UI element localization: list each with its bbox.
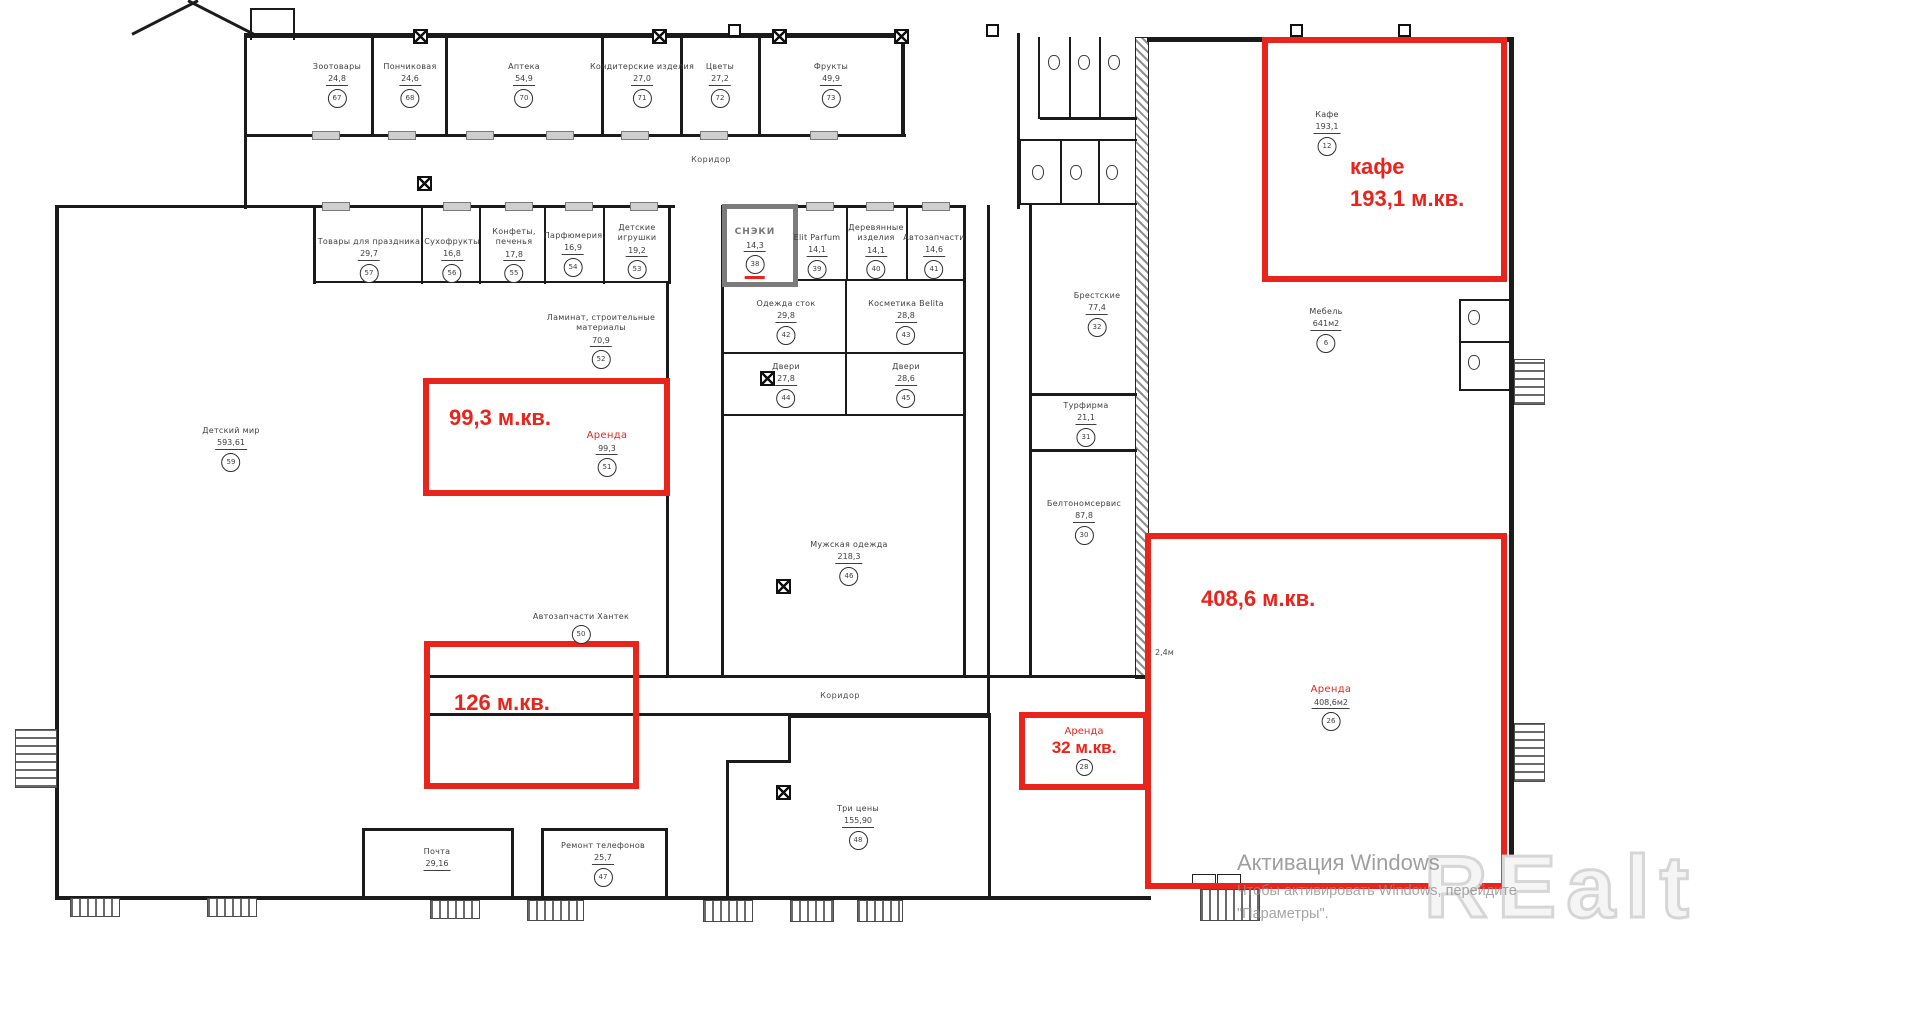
wall-segment	[1040, 117, 1137, 120]
room-label: Двери27,844	[772, 362, 800, 408]
column-marker	[776, 579, 791, 594]
windows-activation-line: Чтобы активировать Windows, перейдите	[1237, 883, 1517, 899]
wall-segment	[1029, 205, 1032, 677]
room-label: Ремонт телефонов25,747	[561, 841, 645, 887]
room-area: 641м2	[1311, 319, 1341, 330]
room-number-badge: 43	[896, 326, 915, 345]
entrance-gable-line	[187, 0, 254, 36]
room-number-badge: 57	[360, 264, 379, 283]
room-label: Парфюмерия16,954	[544, 231, 603, 277]
room-number-badge: 28	[1076, 759, 1093, 776]
stair-symbol	[430, 900, 480, 919]
room-label: Турфирма21,131	[1063, 401, 1108, 447]
door-marker	[505, 202, 533, 211]
room-label: Ламинат, строительныематериалы70,952	[547, 313, 655, 369]
wall-segment	[1029, 393, 1137, 396]
wall-segment	[1038, 37, 1040, 119]
column-marker	[772, 29, 787, 44]
room-number-badge: 51	[597, 458, 616, 477]
zone-area-label: 126 м.кв.	[454, 687, 550, 719]
room-area: 29,8	[775, 311, 797, 322]
wall-segment	[1069, 37, 1071, 119]
room-label: Аптека54,970	[508, 62, 540, 108]
room-label: СНЭКИ14,338	[735, 227, 776, 279]
corridor-label: Коридор	[820, 691, 860, 700]
room-name: Аренда	[587, 429, 628, 442]
toilet-icon	[1106, 165, 1118, 180]
room-name: Конфеты,	[492, 227, 536, 237]
wall-segment	[988, 715, 991, 899]
wall-segment	[758, 36, 761, 136]
room-name: Фрукты	[814, 62, 848, 72]
zone-arenda-label: Аренда	[1065, 726, 1104, 737]
room-number-badge: 67	[328, 89, 347, 108]
room-name: Косметика Belita	[868, 299, 944, 309]
room-label: Цветы27,272	[706, 62, 734, 108]
wall-segment	[1459, 389, 1511, 391]
wall-segment	[293, 8, 295, 40]
wall-segment	[1029, 449, 1137, 452]
room-name: Детский мир	[202, 426, 260, 436]
wall-segment	[250, 8, 295, 10]
room-area: 19,2	[626, 246, 648, 257]
stair-symbol	[15, 729, 57, 788]
door-marker	[466, 131, 494, 140]
room-number-badge: 38	[745, 255, 764, 274]
wall-segment	[1019, 139, 1137, 141]
wall-segment	[1459, 341, 1511, 343]
room-area: 27,2	[709, 74, 731, 85]
stair-symbol	[1514, 359, 1545, 405]
room-label: Аренда408,6м226	[1311, 683, 1352, 731]
room-area: 54,9	[513, 74, 535, 85]
toilet-icon	[1108, 55, 1120, 70]
room-number-badge: 31	[1077, 428, 1096, 447]
room-number-badge: 32	[1087, 318, 1106, 337]
room-label: Детскиеигрушки19,253	[618, 223, 657, 279]
wall-segment	[1459, 299, 1461, 391]
toilet-icon	[1070, 165, 1082, 180]
wall-segment	[1098, 139, 1100, 203]
wall-segment	[1060, 139, 1062, 203]
room-number-badge: 52	[591, 350, 610, 369]
room-name: Двери	[772, 362, 800, 372]
entrance-gable-line	[131, 0, 198, 36]
door-marker	[630, 202, 658, 211]
room-name: изделия	[848, 233, 903, 243]
room-label: Мебель641м26	[1309, 307, 1342, 353]
room-area: 77,4	[1086, 303, 1108, 314]
zone-area-label: 32 м.кв.	[1052, 738, 1117, 758]
room-number-badge: 72	[710, 89, 729, 108]
stair-symbol	[703, 900, 753, 922]
zone-area-label: 99,3 м.кв.	[449, 402, 551, 434]
room-name: Кафе	[1314, 110, 1341, 120]
wall-segment	[313, 205, 316, 284]
room-number-badge: 26	[1321, 712, 1340, 731]
wall-segment	[845, 281, 847, 414]
room-label: Одежда сток29,842	[756, 299, 815, 345]
room-number-badge: 50	[571, 625, 590, 644]
room-label: Фрукты49,973	[814, 62, 848, 108]
wall-segment	[1459, 299, 1511, 301]
room-number-badge: 48	[849, 831, 868, 850]
room-label: Деревянныеизделия14,140	[848, 223, 903, 279]
room-label: Автозапчасти14,641	[903, 233, 965, 279]
room-area: 24,8	[326, 74, 348, 85]
wall-segment	[901, 33, 905, 137]
room-label: Белтономсервис87,830	[1047, 499, 1121, 545]
room-number-badge: 53	[627, 260, 646, 279]
room-number-badge: 44	[776, 389, 795, 408]
red-underline	[745, 276, 765, 279]
room-name: Ламинат, строительные	[547, 313, 655, 323]
wall-segment	[371, 36, 374, 136]
wall-segment	[421, 208, 423, 284]
room-name: Автозапчасти	[903, 233, 965, 243]
toilet-icon	[1468, 310, 1480, 325]
room-number-badge: 45	[896, 389, 915, 408]
room-number-badge: 47	[593, 868, 612, 887]
door-marker	[922, 202, 950, 211]
room-label: Двери28,645	[892, 362, 920, 408]
room-number-badge: 73	[822, 89, 841, 108]
room-name: Одежда сток	[756, 299, 815, 309]
room-name: Аренда	[1311, 683, 1352, 696]
wall-segment	[1019, 203, 1137, 205]
room-label: Сухофрукты16,856	[424, 237, 479, 283]
room-name: Зоотовары	[313, 62, 361, 72]
wall-segment	[1029, 675, 1147, 678]
room-area: 87,8	[1073, 511, 1095, 522]
wall-segment	[55, 205, 59, 900]
room-label: Брестские77,432	[1074, 291, 1121, 337]
room-name: печенья	[492, 237, 536, 247]
room-number-badge: 39	[807, 260, 826, 279]
room-label: Мужская одежда218,346	[810, 540, 888, 586]
room-label: Кафе193,112	[1314, 110, 1341, 156]
column-marker	[652, 29, 667, 44]
wall-segment	[362, 828, 365, 898]
wall-segment	[1019, 139, 1021, 203]
room-area: 17,8	[503, 250, 525, 261]
room-area: 408,6м2	[1312, 698, 1350, 709]
wall-segment	[1099, 37, 1101, 119]
room-number-badge: 30	[1075, 526, 1094, 545]
door-marker	[322, 202, 350, 211]
door-marker	[700, 131, 728, 140]
vent-marker	[986, 24, 999, 37]
stair-symbol	[527, 900, 584, 921]
room-name: Цветы	[706, 62, 734, 72]
toilet-icon	[1078, 55, 1090, 70]
room-number-badge: 54	[564, 258, 583, 277]
room-name: Деревянные	[848, 223, 903, 233]
room-area: 28,6	[895, 374, 917, 385]
corridor-label: Коридор	[691, 155, 731, 164]
room-label: Детский мир593,6159	[202, 426, 260, 472]
room-name: Товары для праздника	[318, 237, 421, 247]
room-name: материалы	[547, 323, 655, 333]
stair-symbol	[857, 900, 903, 922]
room-number-badge: 56	[442, 264, 461, 283]
room-label: Почта29,16	[424, 847, 451, 871]
room-area: 28,8	[895, 311, 917, 322]
dimension-label: 2,4м	[1155, 648, 1174, 657]
wall-segment	[244, 33, 247, 209]
zone-area-label: 408,6 м.кв.	[1201, 583, 1315, 615]
room-number-badge: 6	[1317, 334, 1336, 353]
room-name: Детские	[618, 223, 657, 233]
wall-segment	[541, 828, 544, 898]
room-area: 14,1	[865, 246, 887, 257]
toilet-icon	[1032, 165, 1044, 180]
room-name: СНЭКИ	[735, 227, 776, 239]
room-area: 21,1	[1075, 413, 1097, 424]
wall-segment	[603, 208, 605, 284]
door-marker	[546, 131, 574, 140]
zone-99: 99,3 м.кв.	[423, 378, 670, 496]
room-name: Пончиковая	[383, 62, 436, 72]
room-label: Зоотовары24,867	[313, 62, 361, 108]
room-name: Почта	[424, 847, 451, 857]
wall-segment	[788, 715, 990, 718]
room-area: 193,1	[1314, 122, 1341, 133]
stair-symbol	[790, 900, 834, 922]
wall-segment	[445, 36, 448, 136]
wall-segment	[987, 205, 990, 715]
vent-marker	[728, 24, 741, 37]
column-marker	[417, 176, 432, 191]
toilet-icon	[1468, 355, 1480, 370]
room-name: Турфирма	[1063, 401, 1108, 411]
room-label: Конфеты,печенья17,855	[492, 227, 536, 283]
vent-marker	[1398, 24, 1411, 37]
room-number-badge: 40	[867, 260, 886, 279]
room-area: 593,61	[215, 438, 247, 449]
room-area: 70,9	[590, 336, 612, 347]
zone-126: 126 м.кв.	[424, 641, 639, 789]
room-label: Автозапчасти Хантек50	[533, 612, 629, 644]
door-marker	[806, 202, 834, 211]
room-area: 29,16	[424, 859, 451, 870]
room-area: 25,7	[592, 853, 614, 864]
room-area: 155,90	[842, 816, 874, 827]
wall-segment	[541, 828, 668, 831]
room-name: Кондитерские изделия	[590, 62, 694, 72]
vent-marker	[1290, 24, 1303, 37]
zone-cafe: кафе193,1 м.кв.	[1262, 37, 1507, 282]
room-area: 16,9	[562, 243, 584, 254]
stair-symbol	[1514, 723, 1545, 782]
room-number-badge: 46	[840, 567, 859, 586]
room-label: Кондитерские изделия27,071	[590, 62, 694, 108]
door-marker	[388, 131, 416, 140]
room-area: 99,3	[596, 444, 618, 455]
wall-segment	[726, 760, 791, 763]
floor-plan: REalt Активация Windows Чтобы активирова…	[0, 0, 1914, 1035]
windows-activation-title: Активация Windows	[1237, 850, 1517, 876]
room-label: Пончиковая24,668	[383, 62, 436, 108]
room-name: игрушки	[618, 233, 657, 243]
zone-area-label-line2: 193,1 м.кв.	[1350, 183, 1464, 215]
room-area: 16,8	[441, 249, 463, 260]
windows-activation: Активация Windows Чтобы активировать Win…	[1237, 850, 1517, 922]
room-area: 27,8	[775, 374, 797, 385]
room-name: Автозапчасти Хантек	[533, 612, 629, 622]
door-marker	[866, 202, 894, 211]
column-marker	[776, 785, 791, 800]
wall-segment	[244, 33, 906, 38]
room-number-badge: 42	[777, 326, 796, 345]
room-number-badge: 59	[222, 453, 241, 472]
door-marker	[443, 202, 471, 211]
wall-segment	[668, 205, 671, 284]
wall-segment	[244, 134, 906, 137]
room-area: 14,3	[744, 241, 766, 252]
room-label: Товары для праздника29,757	[318, 237, 421, 283]
room-area: 14,1	[806, 245, 828, 256]
room-area: 49,9	[820, 74, 842, 85]
room-area: 24,6	[399, 74, 421, 85]
room-number-badge: 71	[633, 89, 652, 108]
wall-segment	[665, 828, 668, 898]
wall-segment	[788, 715, 791, 763]
room-name: Парфюмерия	[544, 231, 603, 241]
door-marker	[621, 131, 649, 140]
room-area: 14,6	[923, 245, 945, 256]
door-marker	[312, 131, 340, 140]
room-name: Elit Parfum	[794, 233, 841, 243]
room-name: Сухофрукты	[424, 237, 479, 247]
room-number-badge: 55	[505, 264, 524, 283]
room-name: Аптека	[508, 62, 540, 72]
room-area: 29,7	[358, 249, 380, 260]
room-number-badge: 68	[400, 89, 419, 108]
windows-activation-line: "Параметры".	[1237, 906, 1517, 922]
wall-segment	[726, 760, 729, 899]
room-name: Двери	[892, 362, 920, 372]
wall-segment	[721, 414, 966, 416]
column-marker	[413, 29, 428, 44]
room-name: Брестские	[1074, 291, 1121, 301]
column-marker	[894, 29, 909, 44]
room-number-badge: 41	[925, 260, 944, 279]
wall-segment	[721, 352, 966, 354]
room-area: 218,3	[836, 552, 863, 563]
room-number-badge: 70	[514, 89, 533, 108]
room-label: Три цены155,9048	[837, 804, 879, 850]
zone-32: Аренда32 м.кв.28	[1019, 712, 1149, 790]
room-name: Мебель	[1309, 307, 1342, 317]
zone-area-label: кафе193,1 м.кв.	[1350, 151, 1464, 215]
door-marker	[810, 131, 838, 140]
room-label: Косметика Belita28,843	[868, 299, 944, 345]
wall-segment	[362, 828, 514, 831]
room-name: Три цены	[837, 804, 879, 814]
room-name: Мужская одежда	[810, 540, 888, 550]
room-name: Белтономсервис	[1047, 499, 1121, 509]
stair-symbol	[70, 898, 120, 917]
wall-segment	[250, 8, 252, 40]
stair-symbol	[207, 898, 257, 917]
wall-segment	[511, 828, 514, 898]
room-number-badge: 12	[1318, 137, 1337, 156]
room-label: Elit Parfum14,139	[794, 233, 841, 279]
door-marker	[565, 202, 593, 211]
room-name: Ремонт телефонов	[561, 841, 645, 851]
toilet-icon	[1048, 55, 1060, 70]
room-area: 27,0	[631, 74, 653, 85]
room-label: Аренда99,351	[587, 429, 628, 477]
